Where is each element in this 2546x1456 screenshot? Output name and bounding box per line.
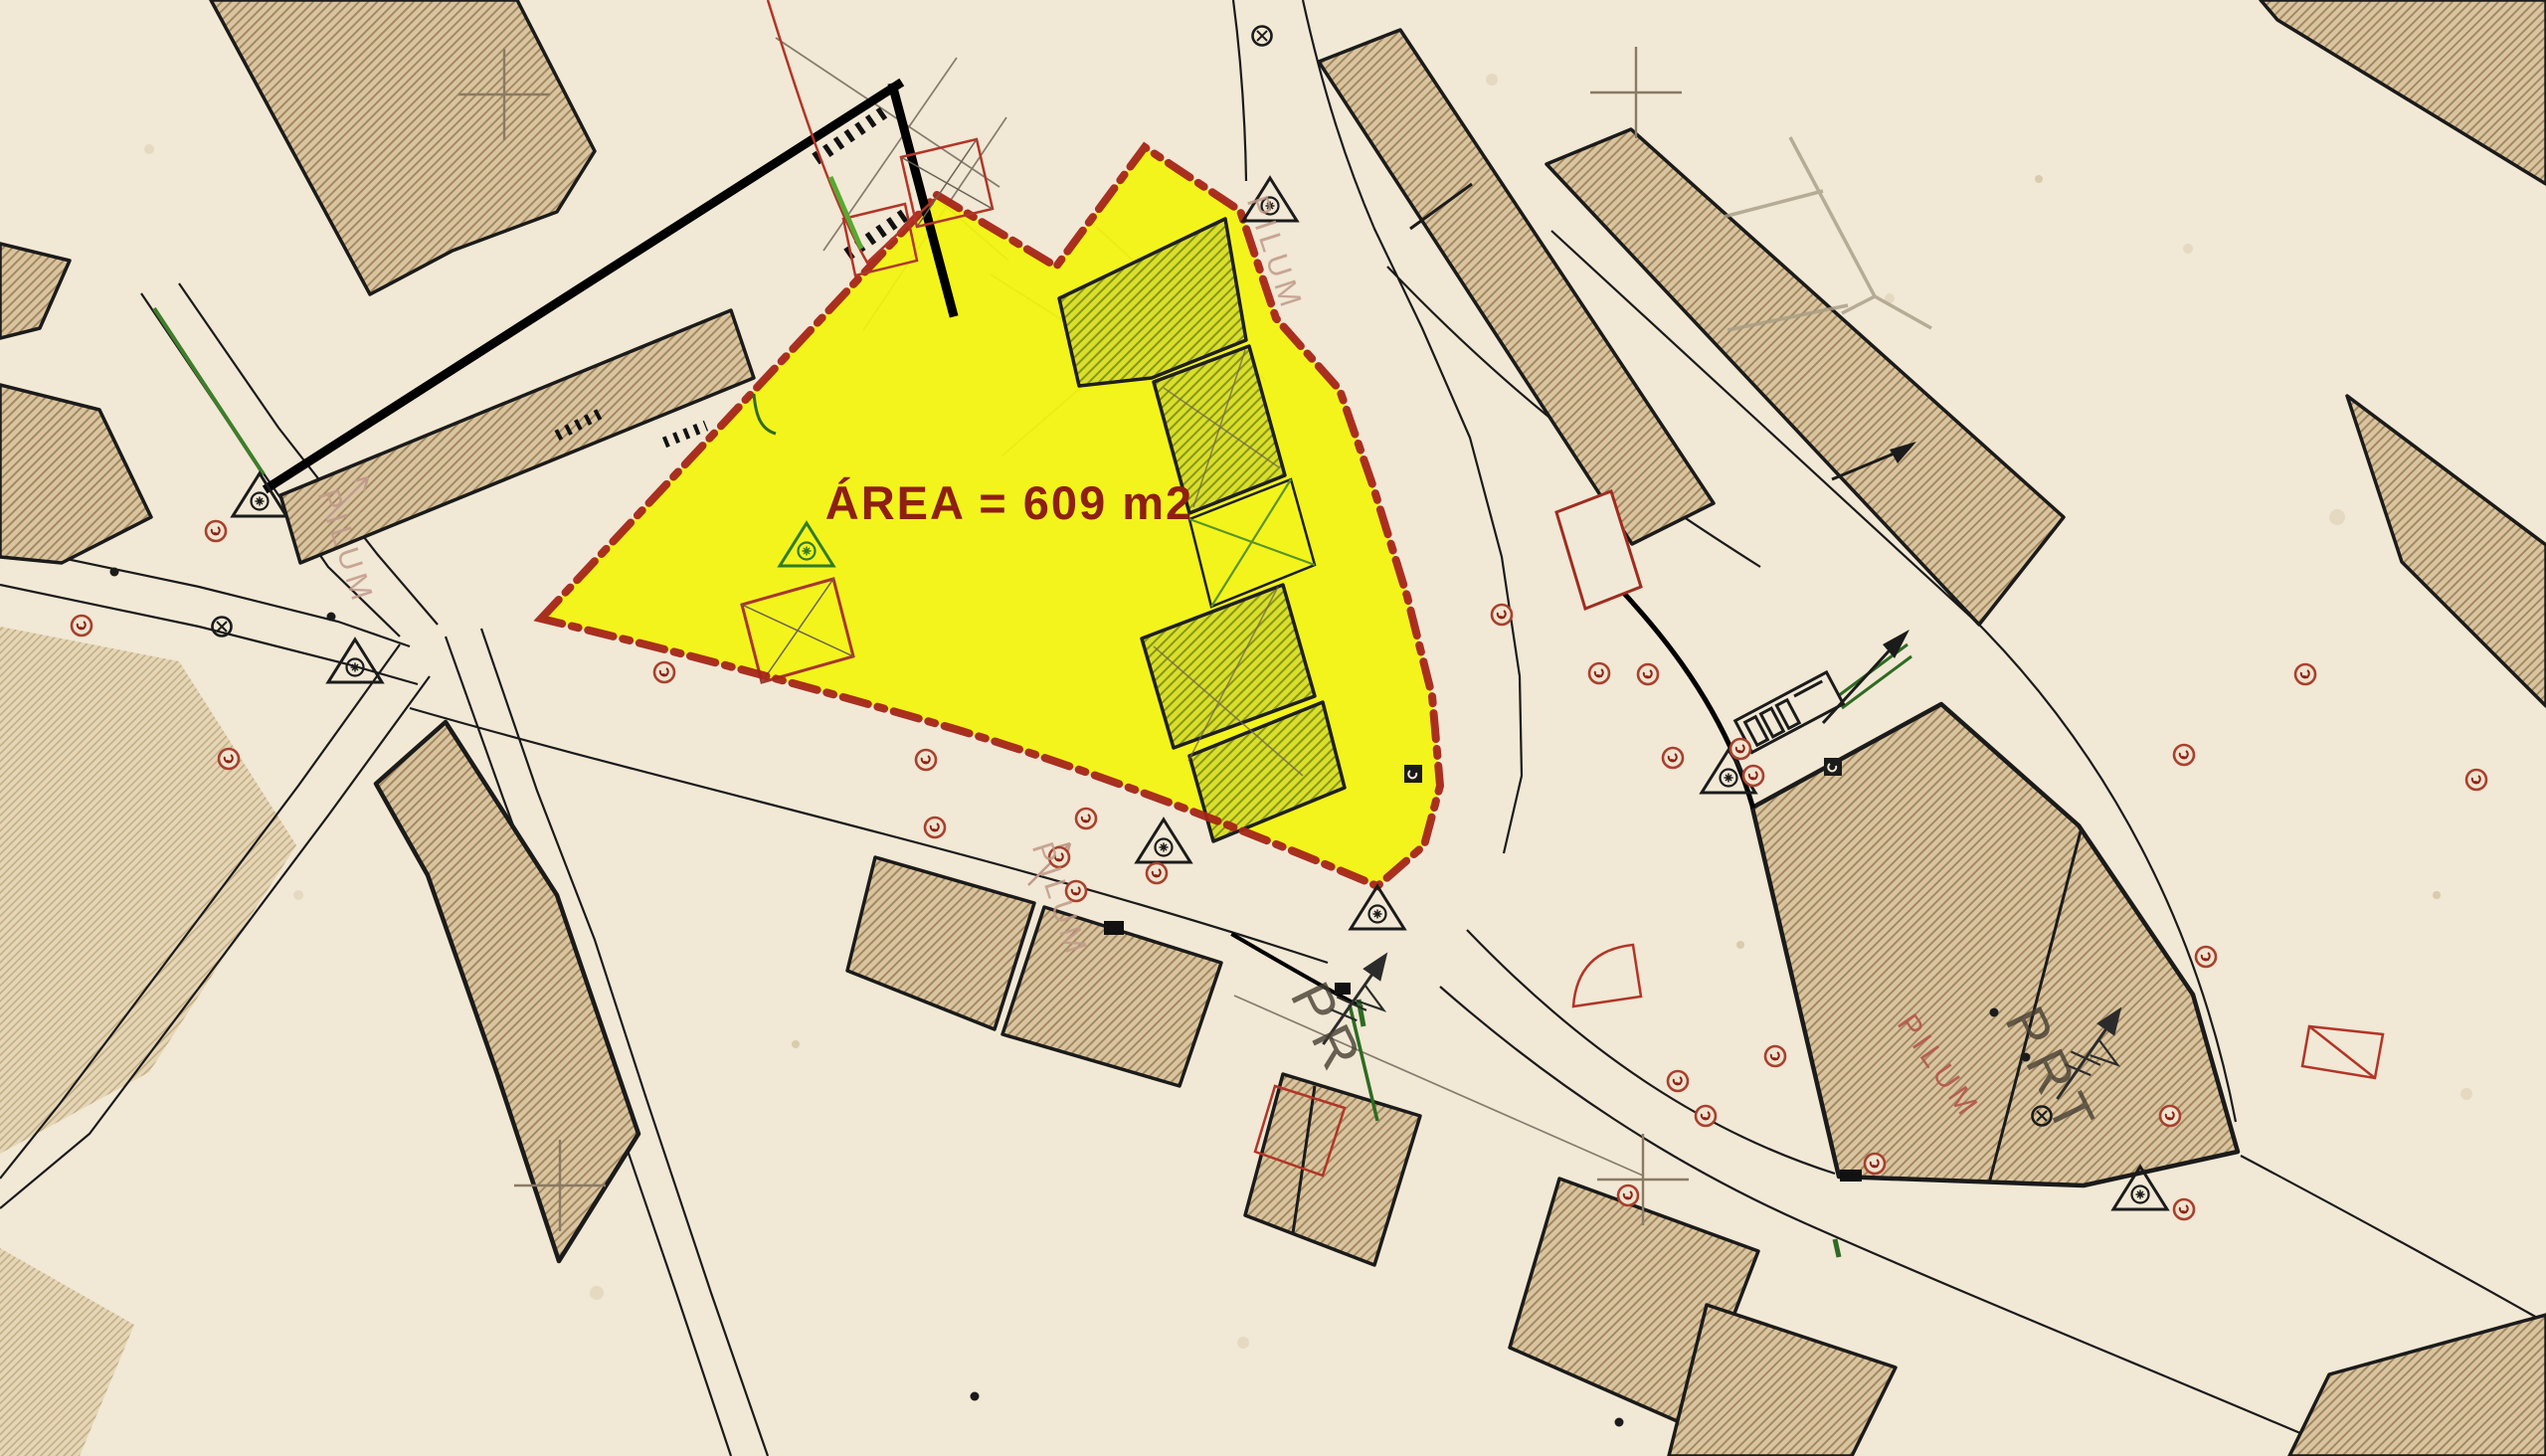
red-circle-marker-icon <box>1663 748 1683 768</box>
red-circle-marker-icon <box>2160 1106 2180 1126</box>
red-circle-marker-icon <box>1743 766 1763 786</box>
red-circle-marker-icon <box>206 521 226 541</box>
utility-box-icon <box>1824 758 1842 776</box>
survey-map-page: ÁREA = 609 m2 <box>0 0 2546 1456</box>
red-circle-marker-icon <box>2196 947 2216 967</box>
red-circle-marker-icon <box>1618 1185 1638 1205</box>
red-circle-marker-icon <box>2174 745 2194 765</box>
red-circle-marker-icon <box>2295 664 2315 684</box>
survey-map: ÁREA = 609 m2 <box>0 0 2546 1456</box>
red-circle-marker-icon <box>925 818 945 837</box>
red-circle-marker-icon <box>916 750 936 770</box>
red-circle-marker-icon <box>1668 1071 1688 1091</box>
red-circle-marker-icon <box>1076 809 1096 828</box>
red-circle-marker-icon <box>2466 770 2486 790</box>
red-circle-marker-icon <box>1492 605 1512 625</box>
red-circle-marker-icon <box>1696 1106 1716 1126</box>
red-circle-marker-icon <box>72 616 91 636</box>
red-circle-marker-icon <box>1730 739 1750 759</box>
red-circle-marker-icon <box>1865 1154 1885 1174</box>
red-circle-marker-icon <box>1589 663 1609 683</box>
red-circle-marker-icon <box>1765 1046 1785 1066</box>
parcel-area-label: ÁREA = 609 m2 <box>825 476 1193 529</box>
red-circle-marker-icon <box>1638 664 1658 684</box>
red-circle-marker-icon <box>1147 863 1167 883</box>
red-circle-marker-icon <box>219 749 239 769</box>
red-circle-marker-icon <box>654 662 674 682</box>
utility-box-icon <box>1404 765 1422 783</box>
red-circle-marker-icon <box>2174 1199 2194 1219</box>
